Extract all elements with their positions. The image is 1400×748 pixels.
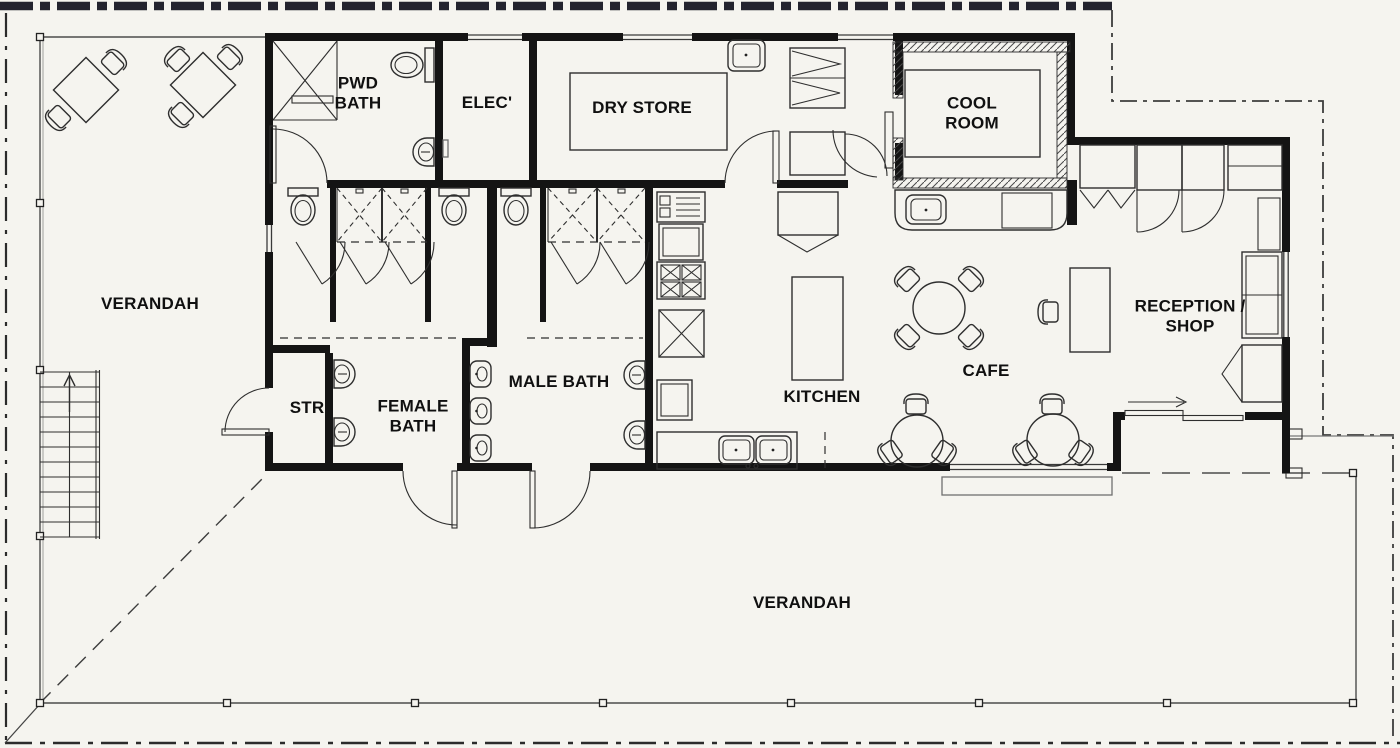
deck-posts — [37, 34, 1357, 707]
basin-icon — [624, 361, 645, 389]
basin-icon — [624, 421, 645, 449]
basin-icon — [413, 138, 434, 166]
sink-icon — [756, 436, 791, 464]
cubicle-door — [551, 242, 600, 284]
stairs — [40, 370, 100, 539]
roof-overhang-outline — [1112, 10, 1393, 742]
dry-store-door — [725, 131, 779, 183]
basin-icon — [334, 418, 355, 446]
shelf-unit — [1242, 252, 1282, 338]
cupboard — [1137, 145, 1182, 232]
counter-equipment — [1002, 193, 1052, 228]
toilet-icon — [439, 188, 469, 225]
reception-sliding-door — [1125, 397, 1243, 421]
shower-cubicle — [597, 188, 645, 242]
room-label-str: STR — [290, 398, 325, 418]
window-east — [1284, 252, 1288, 337]
back-corridor-door — [833, 112, 893, 177]
verandah-furniture — [42, 41, 246, 134]
cupboard — [1080, 145, 1135, 208]
room-label-verandah-left: VERANDAH — [101, 294, 199, 314]
cubicle-door — [340, 242, 389, 284]
electrical-panel — [443, 140, 448, 157]
shower-cubicle — [382, 188, 427, 242]
cooktop — [657, 262, 705, 299]
room-label-cafe: CAFE — [962, 361, 1009, 381]
room-label-verandah-bottom: VERANDAH — [753, 593, 851, 613]
desk-chair — [1038, 300, 1058, 324]
cubicle-door — [296, 242, 345, 284]
room-label-dry-store: DRY STORE — [592, 98, 692, 118]
verandah-table — [161, 41, 246, 131]
urinal-icon — [470, 361, 491, 387]
servery-counter — [895, 190, 1067, 230]
str-door — [222, 388, 269, 435]
toilet-icon — [501, 188, 531, 225]
bench-unit — [657, 380, 692, 420]
male-bath-entry-door — [530, 471, 590, 528]
site-boundary — [0, 6, 1400, 743]
basin-icon — [334, 360, 355, 388]
cafe-table — [874, 394, 960, 469]
room-label-pwd-bath: PWD BATH — [335, 73, 382, 112]
shower-cubicle — [548, 188, 597, 242]
room-label-elec: ELEC' — [462, 93, 512, 113]
cafe-table — [1009, 394, 1097, 469]
display-unit — [1222, 345, 1282, 402]
cooking-bench — [657, 192, 705, 222]
equipment-x — [659, 310, 704, 357]
corner-diagonal — [5, 704, 40, 743]
roof-hip-diagonal — [40, 477, 264, 703]
toilet-icon — [288, 188, 318, 225]
reception-desk — [1038, 268, 1110, 352]
room-label-reception-shop: RECEPTION / SHOP — [1135, 296, 1246, 335]
shelf-unit — [1228, 145, 1282, 190]
kitchen-fixtures — [657, 192, 843, 470]
room-label-male-bath: MALE BATH — [509, 372, 610, 392]
urinal-icon — [470, 435, 491, 461]
window-north-1 — [468, 35, 522, 40]
room-label-kitchen: KITCHEN — [784, 387, 861, 407]
verandah-table — [42, 46, 130, 134]
sink-icon — [719, 436, 754, 464]
fridge-icon — [778, 192, 838, 252]
fridge-pair — [790, 48, 845, 108]
kitchen-island — [792, 277, 843, 380]
window-sill — [942, 477, 1112, 495]
window-north-2 — [623, 35, 692, 40]
shower-cubicle — [337, 188, 382, 242]
cubicle-door — [600, 242, 649, 284]
cafe-table — [891, 263, 987, 353]
bench-unit — [659, 224, 703, 260]
wall-cabinet — [1258, 198, 1280, 250]
sink-icon — [906, 195, 946, 224]
pwd-shower — [273, 41, 337, 120]
pwd-bath-door — [270, 126, 327, 183]
window-cafe-south — [942, 465, 1112, 496]
cupboard — [1182, 145, 1224, 232]
window-west — [267, 225, 272, 252]
floor-plan-drawing — [0, 0, 1400, 748]
fridge-swing-door — [790, 132, 887, 176]
room-label-cool-room: COOL ROOM — [945, 93, 999, 132]
urinal-icon — [470, 398, 491, 424]
floor-plan: VERANDAH PWD BATH ELEC' DRY STORE COOL R… — [0, 0, 1400, 748]
window-north-3 — [838, 35, 893, 40]
sink-icon — [728, 40, 765, 71]
female-bath-entry-door — [403, 471, 457, 528]
toilet-icon — [391, 48, 434, 82]
room-label-female-bath: FEMALE BATH — [377, 396, 448, 435]
